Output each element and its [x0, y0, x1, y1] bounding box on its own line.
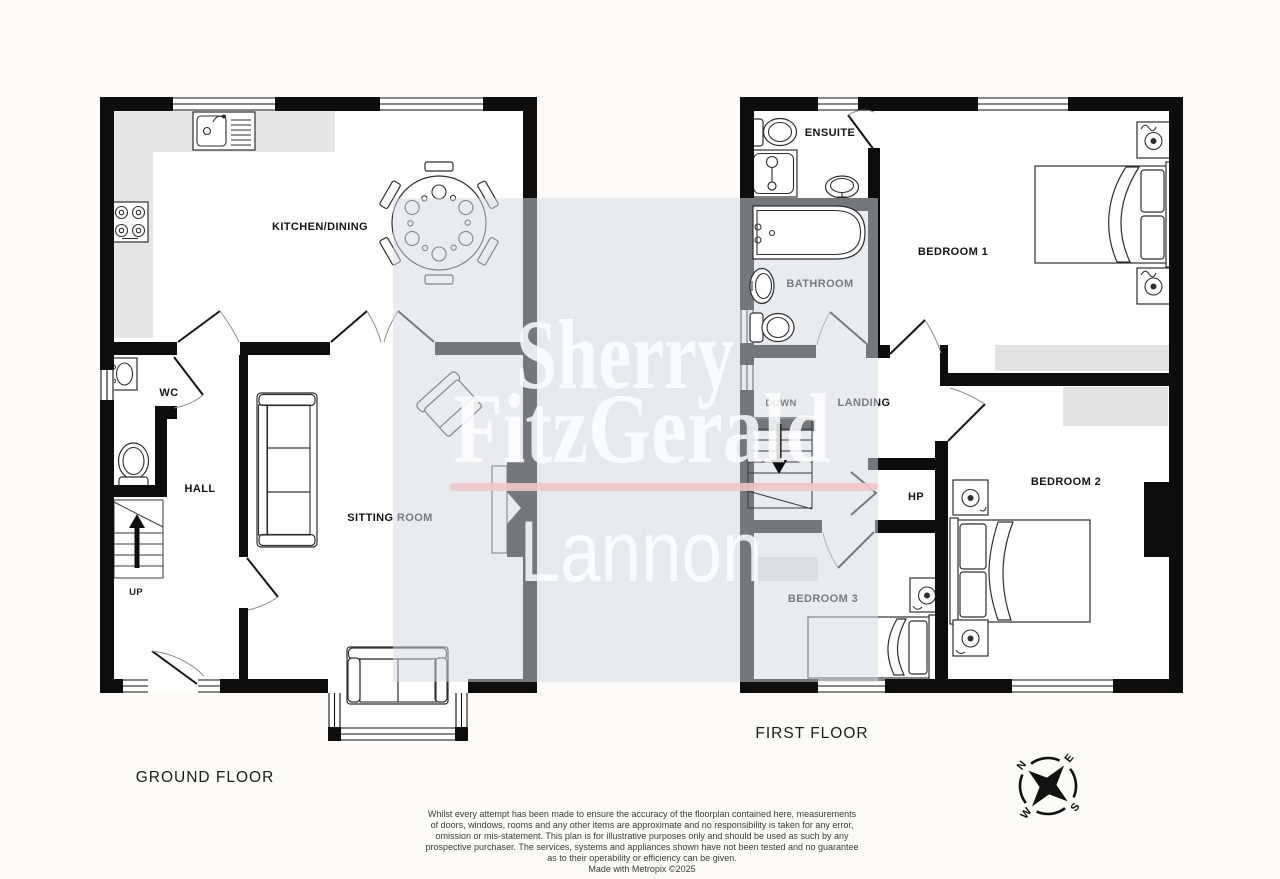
bedroom2-wardrobe	[1063, 387, 1168, 426]
room-label-wc: WC	[159, 387, 178, 399]
floorplan-canvas: KITCHEN/DINING SITTING ROOM HALL WC UP G…	[0, 0, 1280, 879]
compass-south: S	[1069, 801, 1083, 814]
wc-toilet-icon	[119, 443, 149, 491]
kitchen-sink-icon	[193, 112, 255, 150]
sofa-large-icon	[257, 393, 317, 547]
compass-west: W	[1019, 805, 1035, 821]
room-label-bedroom1: BEDROOM 1	[918, 246, 988, 258]
room-label-ensuite: ENSUITE	[805, 127, 855, 139]
room-label-kitchen-dining: KITCHEN/DINING	[272, 221, 368, 233]
wc-basin-icon	[110, 358, 137, 390]
bedroom1-wardrobe	[995, 345, 1170, 371]
disclaimer-line: prospective purchaser. The services, sys…	[425, 842, 858, 852]
bathroom-toilet-icon	[750, 313, 794, 342]
watermark-text-line2: FitzGerald	[454, 373, 831, 484]
compass-rose: N E S W	[993, 732, 1105, 843]
bath-icon	[753, 206, 865, 259]
ground-floor-title: GROUND FLOOR	[136, 769, 275, 786]
compass-east: E	[1063, 752, 1077, 765]
stairs-up-label: UP	[129, 587, 143, 598]
bedside-table-icon	[953, 480, 988, 515]
watermark-underline	[450, 483, 878, 491]
bedside-table-icon	[1137, 122, 1170, 158]
shower-icon	[750, 150, 797, 197]
first-floor-title: FIRST FLOOR	[755, 725, 868, 742]
room-label-hall: HALL	[185, 483, 216, 495]
bathroom-basin-icon	[750, 269, 774, 304]
watermark: Sherry FitzGerald Lannon	[393, 198, 878, 682]
disclaimer-line: Whilst every attempt has been made to en…	[428, 809, 857, 819]
compass-north: N	[1015, 759, 1029, 773]
ensuite-basin-icon	[826, 176, 859, 198]
disclaimer: Whilst every attempt has been made to en…	[425, 809, 858, 874]
disclaimer-line: omission or mis-statement. This plan is …	[435, 831, 849, 841]
bedside-table-icon	[953, 620, 988, 656]
bedside-table-icon	[1137, 268, 1170, 304]
disclaimer-credit: Made with Metropix ©2025	[588, 864, 695, 874]
watermark-text-line3: Lannon	[520, 504, 763, 600]
room-label-hp: HP	[908, 491, 924, 503]
disclaimer-line: of doors, windows, rooms and any other i…	[431, 820, 854, 830]
room-label-bedroom2: BEDROOM 2	[1031, 476, 1101, 488]
bed-double-1-icon	[1035, 162, 1174, 267]
disclaimer-line: as to their operability or efficiency ca…	[547, 853, 736, 863]
hob-icon	[112, 202, 148, 242]
ensuite-toilet-icon	[750, 119, 797, 147]
bed-double-2-icon	[950, 518, 1090, 624]
floorplan-page: KITCHEN/DINING SITTING ROOM HALL WC UP G…	[0, 0, 1280, 879]
